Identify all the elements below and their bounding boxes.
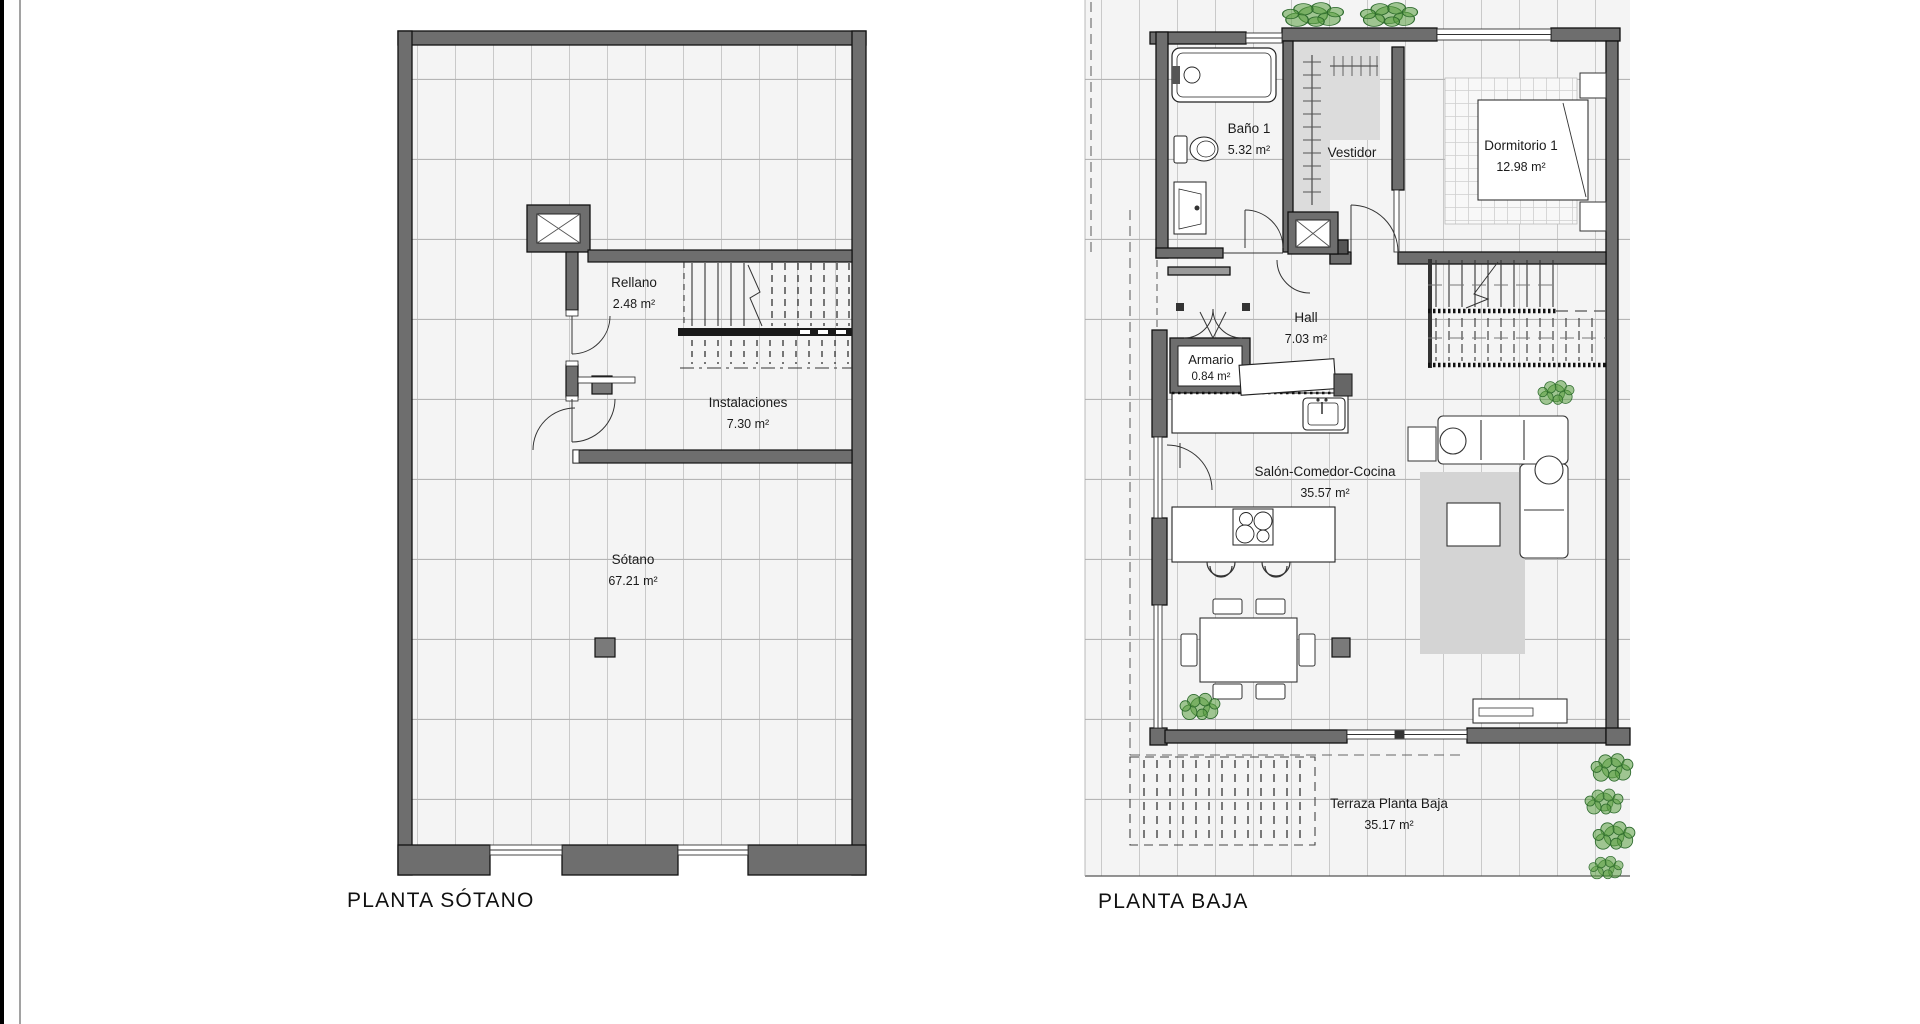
tv-unit-icon — [1473, 699, 1567, 723]
side-table-icon — [1408, 427, 1436, 461]
floorplan-drawing — [0, 0, 1920, 1024]
column-icon — [595, 638, 615, 657]
coffee-table-icon — [1447, 503, 1500, 546]
washbasin-icon — [1174, 182, 1206, 234]
sheet-frame — [0, 0, 20, 1024]
toilet-icon — [1174, 136, 1218, 163]
kitchen-sink-icon — [1303, 398, 1345, 430]
column-icon — [1332, 638, 1350, 657]
plan-sotano — [398, 31, 866, 875]
dining-table-icon — [1200, 618, 1297, 682]
floorplan-canvas: Rellano 2.48 m² Instalaciones 7.30 m² Só… — [0, 0, 1920, 1024]
elevator-shaft-icon — [527, 205, 590, 252]
floor-grid — [412, 45, 852, 845]
cooktop-icon — [1233, 509, 1273, 545]
elevator-shaft-icon — [1288, 212, 1338, 254]
bed-icon — [1478, 100, 1588, 200]
bathtub-icon — [1172, 48, 1276, 102]
rug-icon — [1420, 472, 1525, 654]
plan-baja — [1085, 0, 1635, 879]
